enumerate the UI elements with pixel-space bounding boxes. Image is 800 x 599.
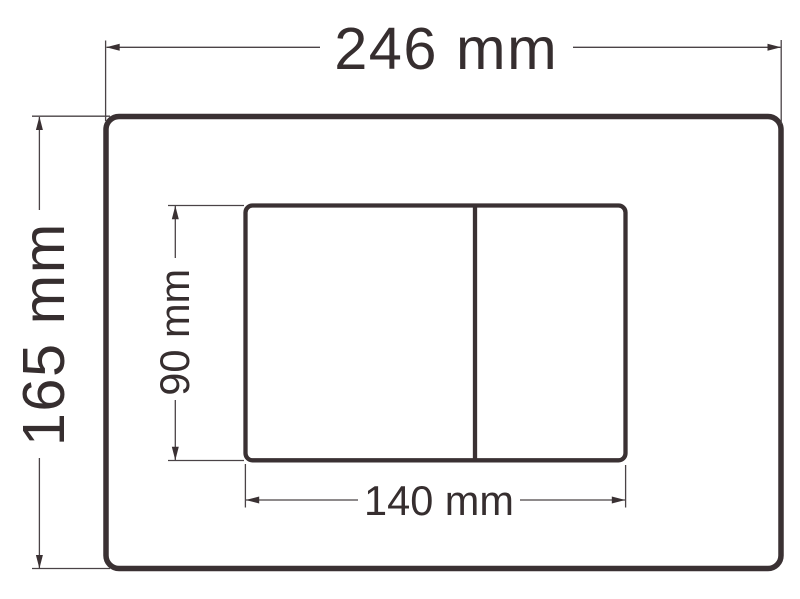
svg-text:140 mm: 140 mm [364, 477, 514, 524]
svg-text:90 mm: 90 mm [151, 269, 198, 396]
svg-text:165 mm: 165 mm [10, 222, 77, 446]
svg-text:246 mm: 246 mm [334, 15, 558, 82]
